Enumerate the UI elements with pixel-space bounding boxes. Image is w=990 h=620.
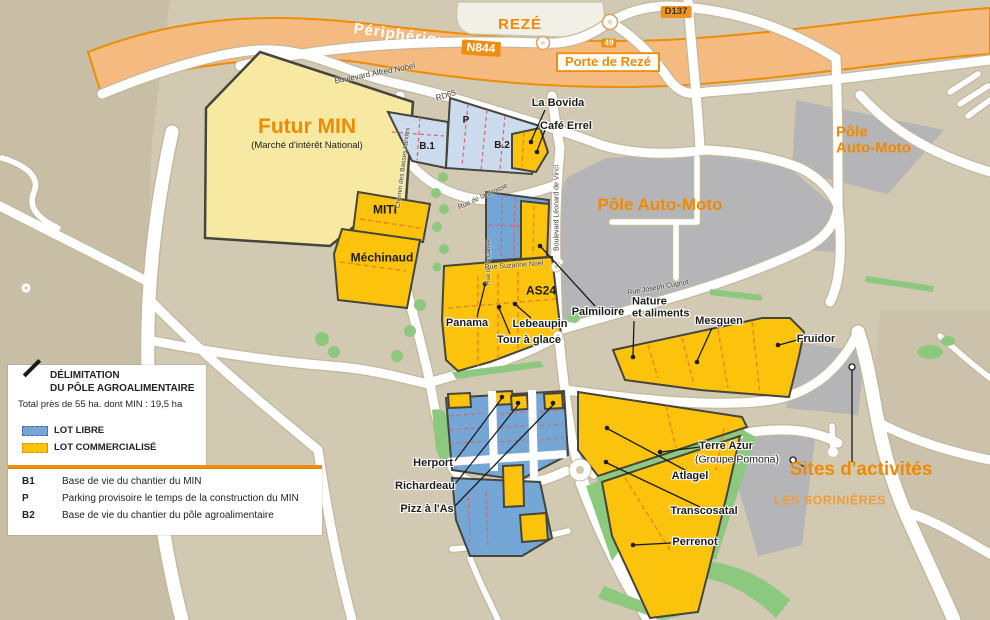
lot-label-miti: MITI [373,204,397,217]
lot-label-tour-a-glace: Tour à glace [497,335,561,347]
exit-badge-49: 49 [601,39,616,48]
interchange-label-porte-de-reze: Porte de Rezé [556,52,660,72]
lot-small-1 [448,393,471,408]
lot-label-nature-line2: et aliments [632,308,689,320]
legend-key-b2: B2 [22,510,35,521]
lot-label-as24: AS24 [526,285,556,298]
legend-total: Total près de 55 ha. dont MIN : 19,5 ha [18,399,182,410]
area-label-les-sorinieres: LES SORINIÈRES [774,494,886,507]
legend-title-line2: DU PÔLE AGROALIMENTAIRE [50,383,194,394]
lot-small-3 [520,513,548,542]
lot-label-mechinaud: Méchinaud [351,252,414,265]
lot-label-la-bovida: La Bovida [532,98,585,110]
area-label-pole-auto-moto: Pôle Auto-Moto [598,196,723,214]
lot-label-herport: Herport [413,458,453,470]
legend-desc-b2: Base de vie du chantier du pôle agroalim… [62,510,274,521]
legend-key-p: P [22,493,29,504]
map-screenshot: REZÉ Périphérique N844 49 Porte de Rezé … [0,0,990,620]
lot-label-transcosatal: Transcosatal [670,506,737,518]
area-label-sites-activites: Sites d'activités [790,460,933,480]
lot-label-pizz-a-las: Pizz à l'As [400,504,453,516]
road-badge-n844: N844 [461,39,501,56]
road-badge-d137: D137 [661,6,692,18]
lot-mechinaud [334,229,420,308]
lot-label-palmiloire: Palmiloire [572,307,625,319]
legend-swatch-lot-commercialise [22,443,48,453]
area-label-pole-line1: Pôle [836,124,911,140]
street-label-bd-leonard-de-vinci: Boulevard Léonard de Vinci [553,165,560,251]
lot-label-cafe-errel: Café Errel [540,121,592,133]
city-label-reze: REZÉ [498,17,542,33]
lot-label-nature-line1: Nature [632,296,689,308]
lot-label-terre-azur: Terre Azur [699,441,753,453]
area-label-pole-line2: Auto-Moto [836,140,911,156]
legend-swatch-lot-libre [22,426,48,436]
lot-label-perrenot: Perrenot [672,537,717,549]
lot-label-b1: B.1 [419,142,435,153]
lot-sublabel-groupe-pomona: (Groupe Pomona) [695,454,779,465]
lot-label-lebeaupin: Lebeaupin [512,319,567,331]
lot-label-atlagel: Atlagel [672,471,709,483]
lot-small-2 [503,465,524,507]
legend-title-line1: DÉLIMITATION [50,370,120,381]
legend-key-b1: B1 [22,476,35,487]
area-label-futur-min: Futur MIN [258,116,356,138]
lot-label-panama: Panama [446,318,488,330]
lot-label-fruidor: Fruidor [797,334,836,346]
legend-desc-p: Parking provisoire le temps de la constr… [62,493,299,504]
lot-label-p: P [463,116,470,127]
lot-label-b2: B.2 [494,141,510,152]
lot-label-richardeau: Richardeau [395,481,455,493]
area-sublabel-futur-min: (Marché d'intérêt National) [251,141,363,151]
area-label-pole-auto-moto-east: Pôle Auto-Moto [836,124,911,156]
lot-label-mesguen: Mesguen [695,316,743,328]
legend-desc-b1: Base de vie du chantier du MIN [62,476,202,487]
lot-label-nature-et-aliments: Nature et aliments [632,296,689,319]
legend-label-lot-commercialise: LOT COMMERCIALISÉ [54,442,156,453]
street-label-rue-de-la-carree: Rue de la Carrée [486,239,492,285]
legend-label-lot-libre: LOT LIBRE [54,425,104,436]
